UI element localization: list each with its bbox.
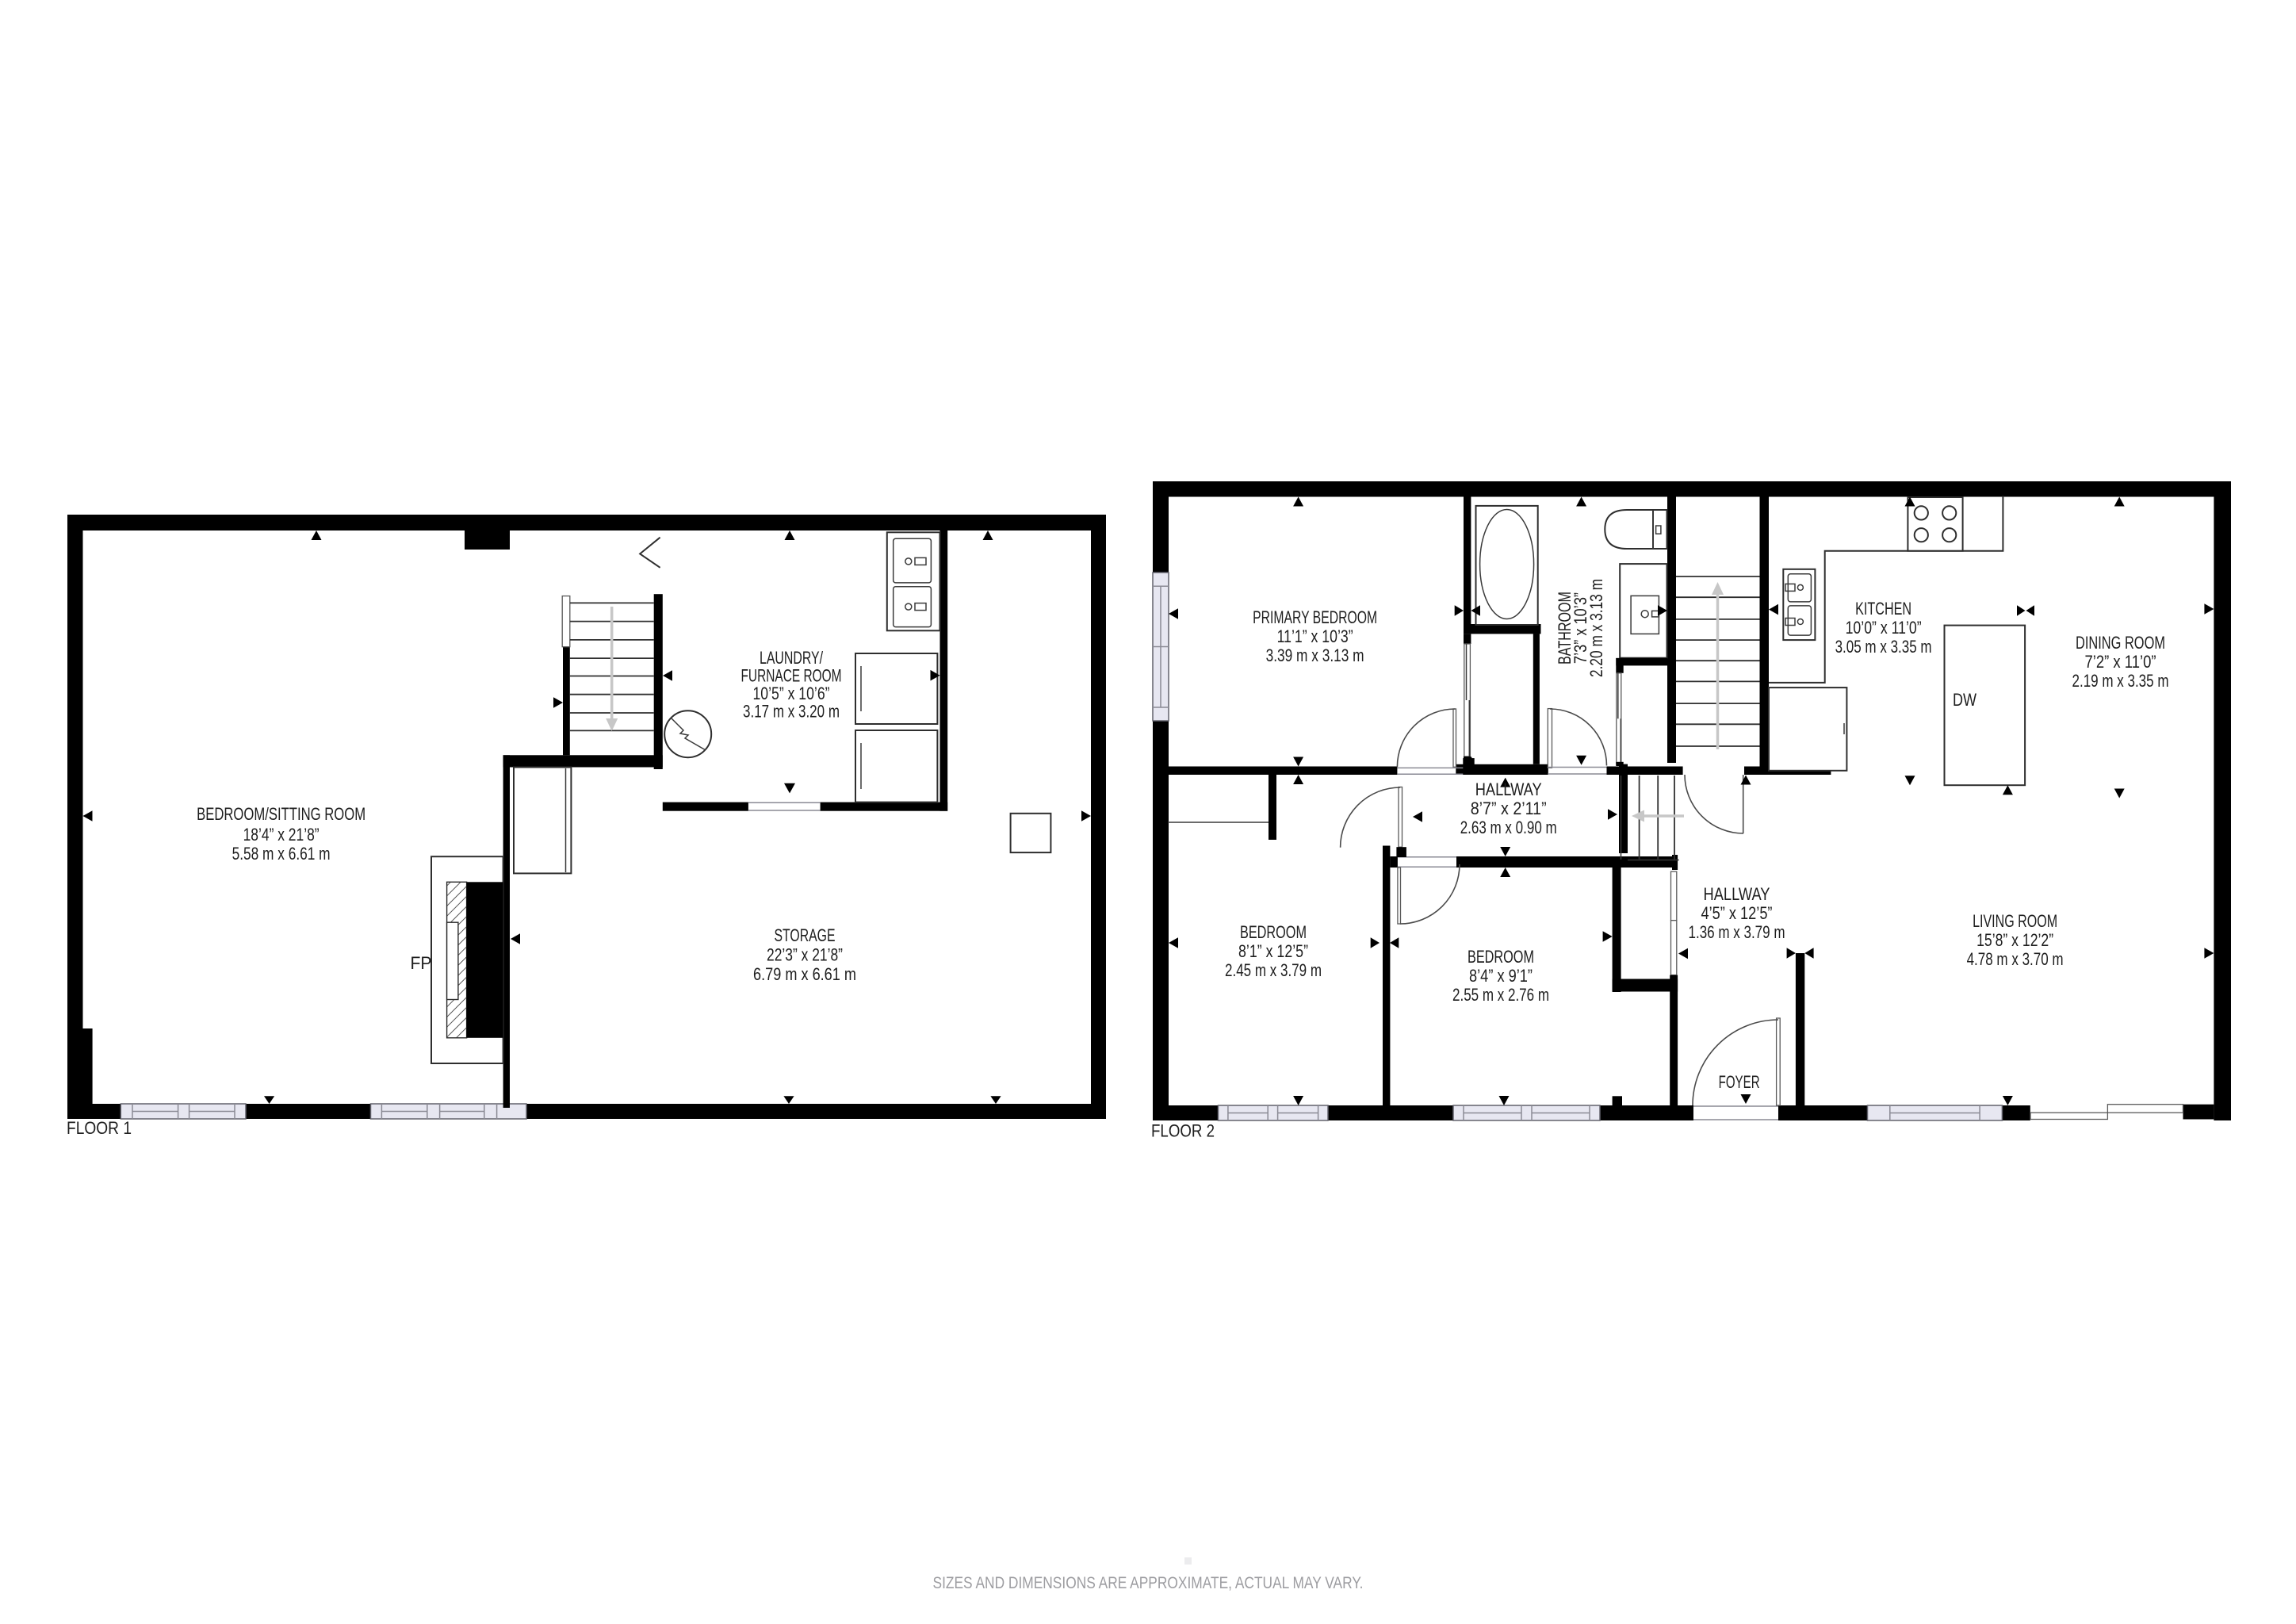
svg-text:10’5” x 10’6”: 10’5” x 10’6” xyxy=(753,684,830,703)
svg-text:3.39 m x 3.13 m: 3.39 m x 3.13 m xyxy=(1266,645,1364,665)
svg-text:15’8” x 12’2”: 15’8” x 12’2” xyxy=(1976,930,2053,950)
svg-text:2.20 m x 3.13 m: 2.20 m x 3.13 m xyxy=(1586,579,1606,677)
svg-text:18’4” x 21’8”: 18’4” x 21’8” xyxy=(243,825,320,845)
svg-text:4’5” x 12’5”: 4’5” x 12’5” xyxy=(1701,903,1773,923)
svg-text:8’4” x 9’1”: 8’4” x 9’1” xyxy=(1469,966,1533,986)
svg-text:LIVING ROOM: LIVING ROOM xyxy=(1973,911,2057,931)
svg-text:BEDROOM: BEDROOM xyxy=(1240,922,1307,942)
svg-text:SIZES AND DIMENSIONS ARE APPRO: SIZES AND DIMENSIONS ARE APPROXIMATE, AC… xyxy=(933,1574,1364,1592)
svg-text:8’7” x 2’11”: 8’7” x 2’11” xyxy=(1471,799,1547,818)
svg-text:FURNACE ROOM: FURNACE ROOM xyxy=(741,666,842,686)
svg-text:3.05 m x 3.35 m: 3.05 m x 3.35 m xyxy=(1835,637,1932,657)
svg-text:FOYER: FOYER xyxy=(1719,1072,1760,1092)
svg-text:STORAGE: STORAGE xyxy=(775,925,836,945)
svg-text:5.58 m x 6.61 m: 5.58 m x 6.61 m xyxy=(232,844,331,864)
svg-text:2.45 m x 3.79 m: 2.45 m x 3.79 m xyxy=(1225,960,1322,980)
svg-text:PRIMARY BEDROOM: PRIMARY BEDROOM xyxy=(1253,607,1377,627)
svg-text:HALLWAY: HALLWAY xyxy=(1475,779,1542,799)
svg-text:FLOOR 1: FLOOR 1 xyxy=(67,1118,132,1138)
svg-text:2.55 m x 2.76 m: 2.55 m x 2.76 m xyxy=(1452,985,1549,1005)
svg-text:6.79 m x 6.61 m: 6.79 m x 6.61 m xyxy=(753,964,856,984)
svg-text:22’3” x 21’8”: 22’3” x 21’8” xyxy=(767,945,843,965)
svg-text:DW: DW xyxy=(1953,690,1976,710)
svg-text:FP: FP xyxy=(411,953,432,973)
svg-text:BEDROOM: BEDROOM xyxy=(1468,947,1534,967)
svg-text:10’0” x 11’0”: 10’0” x 11’0” xyxy=(1846,618,1922,638)
svg-text:2.19 m x 3.35 m: 2.19 m x 3.35 m xyxy=(2072,671,2169,691)
svg-text:11’1” x 10’3”: 11’1” x 10’3” xyxy=(1277,626,1353,646)
svg-text:KITCHEN: KITCHEN xyxy=(1855,599,1911,619)
svg-text:8’1” x 12’5”: 8’1” x 12’5” xyxy=(1238,941,1308,961)
svg-text:FLOOR 2: FLOOR 2 xyxy=(1151,1121,1215,1141)
svg-text:LAUNDRY/: LAUNDRY/ xyxy=(760,648,824,668)
svg-text:BEDROOM/SITTING ROOM: BEDROOM/SITTING ROOM xyxy=(197,804,365,824)
svg-text:HALLWAY: HALLWAY xyxy=(1704,884,1770,904)
svg-text:2.63 m x 0.90 m: 2.63 m x 0.90 m xyxy=(1460,818,1557,837)
svg-text:DINING ROOM: DINING ROOM xyxy=(2076,633,2165,653)
svg-text:3.17 m x 3.20 m: 3.17 m x 3.20 m xyxy=(743,702,840,722)
svg-text:1.36 m x 3.79 m: 1.36 m x 3.79 m xyxy=(1689,922,1785,942)
svg-text:4.78 m x 3.70 m: 4.78 m x 3.70 m xyxy=(1967,949,2064,969)
svg-text:7’2” x 11’0”: 7’2” x 11’0” xyxy=(2085,652,2156,672)
